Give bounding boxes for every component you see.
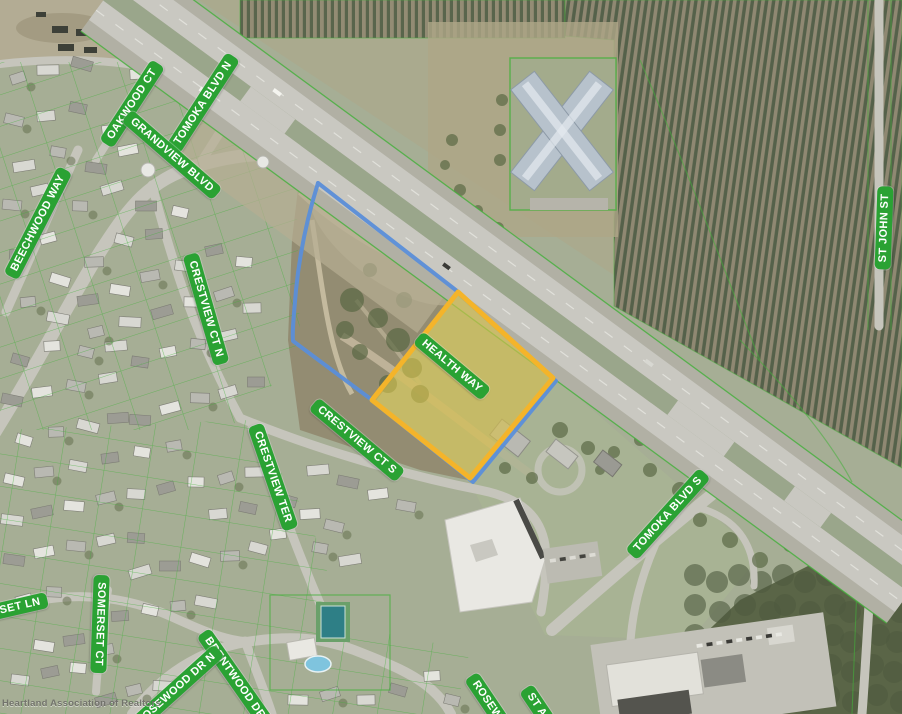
water-tank <box>257 156 269 168</box>
water-tank <box>141 163 155 177</box>
watermark: Heartland Association of Realtors <box>2 698 161 709</box>
parcel-map[interactable]: OAKWOOD CTTOMOKA BLVD NGRANDVIEW BLVDBEE… <box>0 0 902 714</box>
satellite-imagery <box>0 0 902 714</box>
